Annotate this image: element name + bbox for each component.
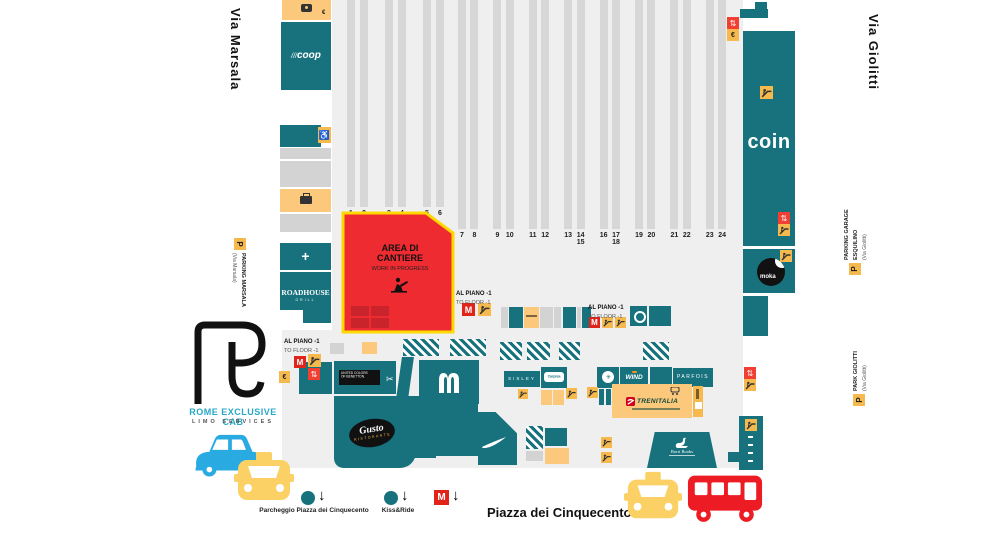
- round-logo-icon: ✳: [602, 371, 614, 383]
- building-block: [740, 9, 768, 18]
- euro-icon: €: [279, 371, 290, 383]
- platform-track: [423, 0, 431, 207]
- canopy-stripes: [500, 342, 522, 360]
- sisley-store: SISLEY: [504, 371, 540, 387]
- platform-track: [683, 0, 691, 229]
- building-block: [599, 389, 604, 405]
- elevator-icon: ⇅: [744, 367, 756, 379]
- platform-track: [577, 0, 585, 229]
- platform-track: [706, 0, 714, 229]
- figure-icon: ✂: [386, 374, 394, 385]
- down-arrow-icon: ↓: [318, 487, 326, 504]
- building-block: [280, 214, 331, 232]
- street-via-giolitti: Via Giolitti: [866, 14, 881, 119]
- building-block: [553, 390, 564, 405]
- euro-icon: €: [322, 10, 325, 16]
- coop-store: ///coop: [281, 22, 331, 90]
- construction-area: [341, 211, 461, 335]
- taxi-icon: [624, 470, 682, 524]
- street-piazza-cinquecento: Piazza dei Cinquecento: [487, 505, 637, 520]
- canopy-stripes: [526, 426, 543, 449]
- legend-parcheggio: Parcheggio Piazza dei Cinquecento: [255, 507, 373, 514]
- platform-number: 1415: [574, 232, 588, 246]
- platform-track: [541, 0, 549, 229]
- building-block: [606, 389, 611, 405]
- building-block: [414, 404, 478, 456]
- escalator-icon: [760, 86, 773, 99]
- trenitalia-office: TRENITALIA: [612, 384, 692, 418]
- cross-icon: +: [280, 243, 331, 270]
- down-arrow-icon: ↓: [401, 487, 409, 504]
- borri-books-store: Borri Books: [647, 432, 717, 468]
- elevator-icon: ⇅: [308, 368, 320, 380]
- mcdonalds-arches-icon: [437, 372, 461, 393]
- escalator-icon: [308, 354, 321, 367]
- parking-esquilino-label: P PARKING GARAGE ESQUILINO (Via Giolitti…: [841, 209, 868, 275]
- building-block: [728, 452, 740, 462]
- termini-station-map: 123456789101112131415161718192021222324 …: [0, 0, 1000, 535]
- luggage-icon: [300, 196, 312, 204]
- building-block: [280, 161, 331, 187]
- platform-number: 20: [644, 232, 658, 239]
- platform-track: [470, 0, 478, 229]
- swan-icon: [672, 437, 692, 449]
- escalator-icon: [601, 437, 612, 448]
- platform-track: [564, 0, 572, 229]
- platform-track: [718, 0, 726, 229]
- platform-track: [360, 0, 368, 207]
- rome-exclusive-cab-monogram: [190, 320, 270, 404]
- platform-number: 10: [503, 232, 517, 239]
- parking-giolitti-label: P PARK GIOLITTI (Via Giolitti): [850, 351, 868, 406]
- platform-track: [612, 0, 620, 229]
- platform-track: [647, 0, 655, 229]
- trenitalia-icon: [626, 397, 635, 406]
- rec-logo-subtitle: LIMO SERVICES: [183, 419, 283, 425]
- building-block: [280, 125, 321, 147]
- train-icon: [670, 387, 680, 395]
- bus-icon: [686, 473, 764, 523]
- metro-icon: M: [294, 356, 306, 368]
- building-block: [545, 428, 567, 446]
- metro-icon: M: [434, 490, 449, 505]
- elevator-icon: ⇅: [727, 17, 739, 29]
- parking-marsala-label: P PARKING MARSALA (Via Marsala): [231, 238, 249, 307]
- building-notch: [280, 310, 303, 323]
- building-block: [563, 307, 576, 328]
- euro-icon: €: [727, 29, 739, 41]
- platform-track: [458, 0, 466, 229]
- carpisa-store: Carpisa: [541, 367, 567, 388]
- platform-track: [506, 0, 514, 229]
- construction-title: AREA DICANTIERE: [345, 243, 455, 263]
- canopy-stripes: [559, 342, 580, 360]
- building-block: [577, 307, 581, 328]
- escalator-icon: [518, 389, 528, 399]
- platform-number: 1718: [609, 232, 623, 246]
- building-block: [545, 448, 569, 464]
- escalator-icon: [587, 387, 598, 398]
- platform-track: [347, 0, 355, 207]
- shop-block: [649, 306, 671, 326]
- building-block: [743, 296, 768, 336]
- escalator-icon: [744, 379, 756, 391]
- escalator-icon: [566, 388, 577, 399]
- construction-subtitle: WORK IN PROGRESS: [345, 266, 455, 272]
- platform-number: 8: [467, 232, 481, 239]
- building-block: [693, 386, 703, 417]
- coin-logo: coin: [743, 131, 795, 154]
- building-block: [280, 148, 331, 159]
- canopy-stripes: [527, 342, 550, 360]
- floor-label: AL PIANO -1TO FLOOR -1: [284, 336, 320, 354]
- platform-number: 24: [715, 232, 729, 239]
- nike-swoosh-icon: [481, 437, 507, 449]
- parking-icon: P: [849, 263, 861, 275]
- building-block: [509, 307, 523, 328]
- platform-track: [600, 0, 608, 229]
- floor-label: AL PIANO -1TO FLOOR -1: [588, 302, 624, 320]
- canopy-stripes: [403, 339, 439, 356]
- shop-block: [630, 306, 647, 326]
- platform-track: [670, 0, 678, 229]
- escalator-icon: [745, 419, 757, 431]
- canopy-stripes: [643, 342, 669, 360]
- legend-kissride: Kiss&Ride: [368, 507, 428, 514]
- platform-number: 12: [538, 232, 552, 239]
- canopy-stripes: [450, 339, 486, 356]
- platform-track: [493, 0, 501, 229]
- building-block: [526, 451, 543, 461]
- floor-label: AL PIANO -1TO FLOOR -1: [456, 288, 492, 306]
- down-arrow-icon: ↓: [452, 487, 460, 504]
- coop-logo: ///coop: [281, 50, 331, 61]
- pharmacy: +: [280, 243, 331, 270]
- parking-icon: P: [234, 238, 246, 250]
- building-block: [330, 343, 344, 354]
- building-block: [554, 307, 561, 328]
- platform-track: [436, 0, 444, 207]
- platform-track: [635, 0, 643, 229]
- building-block: [334, 452, 416, 468]
- ticket-office: [524, 307, 539, 328]
- shop-logo-icon: [695, 402, 702, 409]
- benetton-store: UNITED COLORSOF BENETTON.: [339, 370, 380, 385]
- elevator-icon: ⇅: [778, 212, 790, 224]
- kissride-dot-icon: [384, 491, 398, 505]
- parking-icon: P: [853, 394, 865, 406]
- escalator-icon: [601, 452, 612, 463]
- platform-number: 22: [680, 232, 694, 239]
- street-via-marsala: Via Marsala: [228, 8, 243, 234]
- escalator-icon: [778, 224, 790, 236]
- platform-track: [529, 0, 537, 229]
- moka-logo: moka: [757, 258, 785, 286]
- building-block: [540, 307, 553, 328]
- platform-track: [398, 0, 406, 207]
- camera-icon: [301, 4, 312, 12]
- shop-logo-icon: [634, 311, 646, 323]
- taxi-icon: [232, 452, 296, 504]
- escalator-icon: [780, 250, 792, 262]
- worker-icon: [389, 277, 411, 294]
- building-block: [362, 342, 377, 354]
- roadhouse-logo: ROADHOUSE: [280, 288, 331, 297]
- parcheggio-dot-icon: [301, 491, 315, 505]
- building-block: [541, 390, 552, 405]
- platform-track: [385, 0, 393, 207]
- building-block: [501, 307, 508, 328]
- wheelchair-icon: ♿: [318, 127, 331, 143]
